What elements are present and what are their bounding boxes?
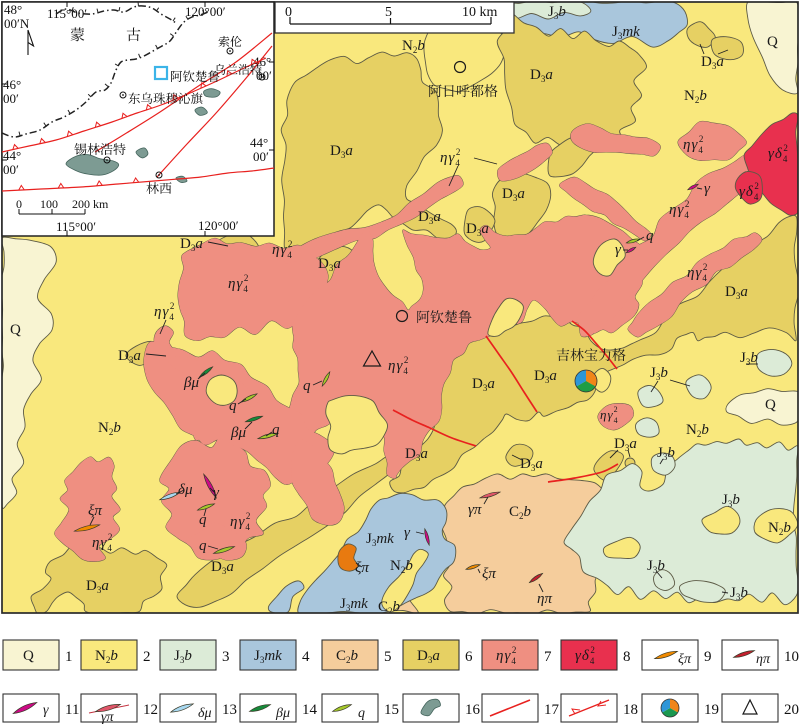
svg-text:γδ42: γδ42 [739, 181, 759, 202]
svg-text:20: 20 [784, 702, 799, 718]
svg-text:γπ: γπ [468, 502, 482, 518]
svg-text:ξπ: ξπ [482, 566, 496, 582]
svg-text:q: q [303, 378, 311, 394]
svg-text:q: q [199, 538, 207, 554]
svg-text:ηπ: ηπ [537, 591, 552, 607]
svg-text:γδ42: γδ42 [768, 143, 788, 164]
svg-text:J3mk: J3mk [340, 596, 368, 613]
svg-text:ηγ42: ηγ42 [496, 645, 516, 666]
svg-text:ηγ42: ηγ42 [272, 239, 292, 260]
svg-text:10: 10 [784, 649, 799, 665]
svg-text:5: 5 [384, 649, 392, 665]
svg-text:120°00′: 120°00′ [198, 218, 239, 233]
svg-text:13: 13 [222, 702, 237, 718]
svg-text:1: 1 [65, 649, 73, 665]
svg-text:7: 7 [544, 649, 552, 665]
svg-text:200 km: 200 km [72, 197, 109, 211]
svg-text:ηγ42: ηγ42 [228, 273, 248, 294]
svg-text:2: 2 [143, 649, 151, 665]
svg-text:J3mk: J3mk [254, 648, 282, 665]
svg-text:00′N: 00′N [4, 16, 30, 31]
svg-text:Q: Q [765, 397, 776, 413]
svg-text:00′: 00′ [253, 149, 269, 164]
svg-text:00′: 00′ [3, 162, 19, 177]
svg-text:6: 6 [465, 649, 473, 665]
svg-text:ξπ: ξπ [355, 560, 369, 576]
svg-text:ηγ42: ηγ42 [230, 511, 250, 532]
svg-text:100: 100 [40, 197, 58, 211]
svg-text:βμ: βμ [275, 706, 290, 721]
svg-text:16: 16 [465, 702, 481, 718]
svg-text:βμ: βμ [183, 375, 199, 391]
svg-text:00′: 00′ [3, 91, 19, 106]
svg-text:5: 5 [385, 5, 392, 20]
svg-text:q: q [229, 398, 237, 414]
svg-text:19: 19 [704, 702, 719, 718]
svg-text:15: 15 [384, 702, 399, 718]
svg-text:ηγ42: ηγ42 [683, 134, 703, 155]
svg-text:3: 3 [222, 649, 230, 665]
svg-text:ηγ42: ηγ42 [92, 532, 112, 553]
svg-text:ξπ: ξπ [88, 503, 102, 519]
svg-text:γ: γ [43, 703, 49, 718]
svg-text:0: 0 [16, 197, 22, 211]
svg-text:ηπ: ηπ [756, 652, 771, 667]
svg-text:8: 8 [623, 649, 631, 665]
svg-text:11: 11 [65, 702, 79, 718]
svg-text:ηγ42: ηγ42 [440, 147, 460, 168]
svg-text:q: q [199, 512, 207, 528]
svg-text:ηγ42: ηγ42 [687, 262, 707, 283]
svg-text:J3mk: J3mk [366, 531, 394, 548]
svg-text:δμ: δμ [198, 706, 212, 721]
svg-text:Q: Q [767, 34, 778, 50]
svg-text:γδ42: γδ42 [575, 645, 595, 666]
svg-text:ξπ: ξπ [678, 652, 692, 667]
svg-text:12: 12 [143, 702, 158, 718]
svg-text:48°: 48° [4, 2, 22, 17]
svg-text:9: 9 [704, 649, 712, 665]
svg-text:q: q [646, 228, 654, 244]
svg-text:0: 0 [285, 5, 292, 20]
svg-text:Q: Q [23, 648, 34, 664]
svg-text:ηγ42: ηγ42 [388, 355, 408, 376]
svg-text:q: q [358, 706, 365, 721]
svg-text:44°: 44° [250, 135, 268, 150]
svg-text:Q: Q [10, 322, 21, 338]
svg-text:10 km: 10 km [462, 5, 498, 20]
svg-text:δμ: δμ [178, 482, 193, 498]
svg-text:17: 17 [544, 702, 560, 718]
svg-text:4: 4 [302, 649, 310, 665]
svg-text:J3mk: J3mk [612, 24, 640, 41]
svg-text:14: 14 [302, 702, 318, 718]
svg-text:115°00′: 115°00′ [56, 219, 96, 234]
svg-text:γπ: γπ [101, 710, 115, 725]
svg-text:βμ: βμ [230, 425, 246, 441]
svg-text:ηγ42: ηγ42 [154, 301, 174, 322]
svg-text:115°00′: 115°00′ [47, 6, 87, 21]
svg-text:ηγ42: ηγ42 [669, 199, 689, 220]
svg-text:q: q [272, 422, 280, 438]
svg-text:18: 18 [623, 702, 638, 718]
